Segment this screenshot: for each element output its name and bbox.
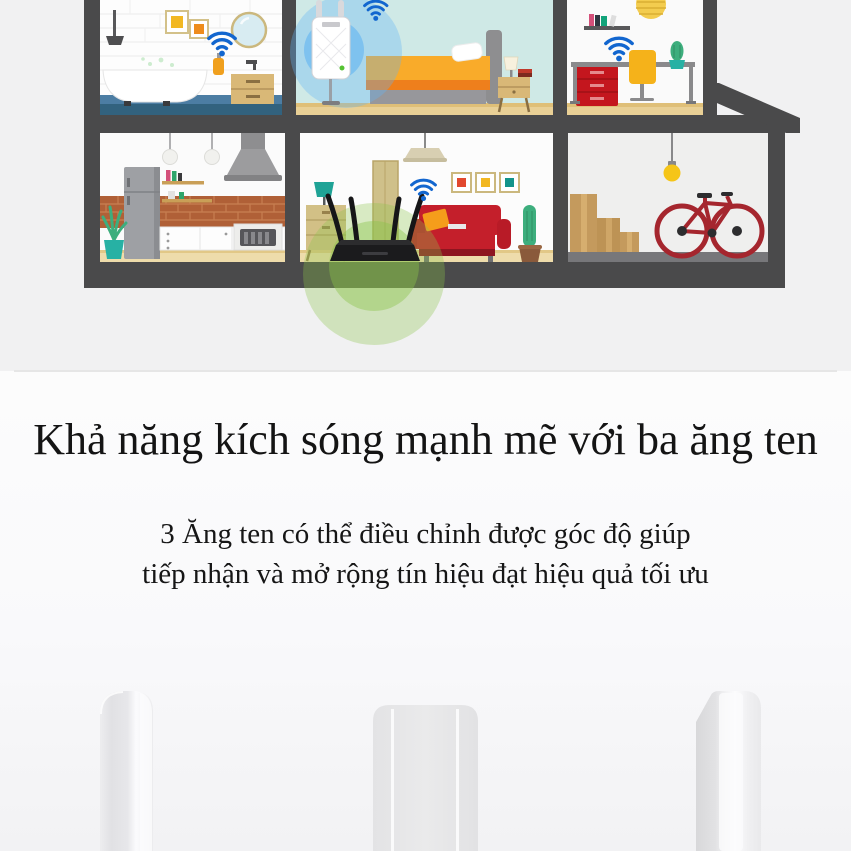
- room-bathroom: [100, 0, 282, 115]
- bathroom-cabinet: [231, 74, 274, 104]
- body-line-2: tiếp nhận và mở rộng tín hiệu đạt hiệu q…: [0, 554, 851, 594]
- antennas-svg: [0, 685, 851, 851]
- section-heading: Khả năng kích sóng mạnh mẽ với ba ăng te…: [0, 412, 851, 468]
- house-wifi-illustration: [0, 0, 851, 371]
- red-drawer-cabinet: [576, 66, 618, 106]
- antenna-right: [696, 691, 761, 851]
- antenna-left: [100, 691, 153, 851]
- room-office: [567, 0, 703, 115]
- kitchen-counter: [160, 224, 285, 250]
- section-divider: [14, 370, 837, 372]
- room-kitchen: [100, 133, 285, 262]
- antenna-middle: [373, 705, 478, 851]
- product-antennas-image: [0, 685, 851, 851]
- house-cutaway-svg: [0, 0, 851, 371]
- room-storage: [568, 133, 768, 262]
- extender-led: [340, 66, 345, 71]
- mirror: [232, 13, 266, 47]
- fridge: [124, 167, 160, 259]
- picture-frames: [452, 173, 519, 192]
- body-line-1: 3 Ăng ten có thể điều chỉnh được góc độ …: [0, 514, 851, 554]
- section-body: 3 Ăng ten có thể điều chỉnh được góc độ …: [0, 514, 851, 594]
- router-signal-glow-inner: [329, 221, 419, 311]
- product-description-page: Khả năng kích sóng mạnh mẽ với ba ăng te…: [0, 0, 851, 851]
